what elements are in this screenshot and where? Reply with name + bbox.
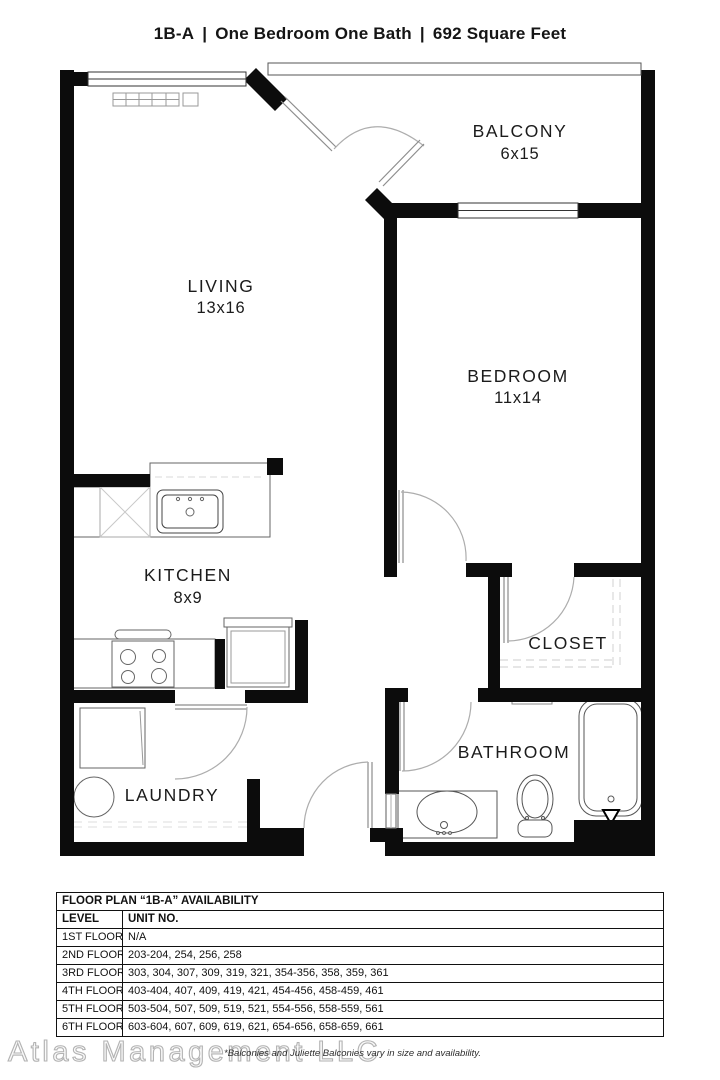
bedroom-door: [399, 490, 466, 563]
bedroom-label: BEDROOM: [467, 366, 569, 386]
fridge-icon: [224, 618, 292, 627]
table-row: 4TH FLOOR 403-404, 407, 409, 419, 421, 4…: [57, 983, 664, 1001]
bedroom-dims: 11x14: [494, 389, 542, 407]
laundry-door: [175, 705, 247, 779]
walls: [60, 70, 655, 856]
kitchen-dims: 8x9: [173, 589, 202, 607]
units-cell: 403-404, 407, 409, 419, 421, 454-456, 45…: [123, 983, 664, 1001]
units-cell: 603-604, 607, 609, 619, 621, 654-656, 65…: [123, 1019, 664, 1037]
balcony-rail: [268, 63, 641, 75]
water-heater-icon: [74, 777, 114, 817]
balcony-disclaimer: *Balconies and Juliette Balconies vary i…: [224, 1048, 481, 1059]
units-cell: 203-204, 254, 256, 258: [123, 947, 664, 965]
entry-door: [304, 762, 372, 828]
table-row: 6TH FLOOR 603-604, 607, 609, 619, 621, 6…: [57, 1019, 664, 1037]
stove-handle: [115, 630, 171, 639]
level-cell: 3RD FLOOR: [57, 965, 123, 983]
level-cell: 5TH FLOOR: [57, 1001, 123, 1019]
closet-shelving: [500, 579, 620, 667]
table-header-row: LEVEL UNIT NO.: [57, 911, 664, 929]
table-title: FLOOR PLAN “1B-A” AVAILABILITY: [57, 893, 664, 911]
living-label: LIVING: [188, 276, 255, 296]
floor-plan-drawing: BALCONY 6x15 LIVING 13x16 BEDROOM 11x14 …: [0, 0, 720, 888]
closet-label: CLOSET: [528, 633, 608, 653]
level-cell: 4TH FLOOR: [57, 983, 123, 1001]
col-header-units: UNIT NO.: [123, 911, 664, 929]
balcony-label: BALCONY: [473, 121, 568, 141]
living-dims: 13x16: [197, 299, 246, 317]
bathroom-fixtures: [398, 696, 642, 838]
laundry-label: LAUNDRY: [125, 785, 220, 805]
level-cell: 1ST FLOOR: [57, 929, 123, 947]
balcony-door: [281, 97, 424, 186]
laundry-fixtures: [73, 708, 250, 827]
table-title-row: FLOOR PLAN “1B-A” AVAILABILITY: [57, 893, 664, 911]
kitchen-label: KITCHEN: [144, 565, 232, 585]
table-row: 1ST FLOOR N/A: [57, 929, 664, 947]
bathroom-label: BATHROOM: [458, 742, 571, 762]
table-row: 5TH FLOOR 503-504, 507, 509, 519, 521, 5…: [57, 1001, 664, 1019]
level-cell: 6TH FLOOR: [57, 1019, 123, 1037]
table-row: 3RD FLOOR 303, 304, 307, 309, 319, 321, …: [57, 965, 664, 983]
units-cell: 303, 304, 307, 309, 319, 321, 354-356, 3…: [123, 965, 664, 983]
units-cell: N/A: [123, 929, 664, 947]
washer-icon: [80, 708, 145, 768]
living-heater-icon: [113, 93, 198, 106]
level-cell: 2ND FLOOR: [57, 947, 123, 965]
balcony-dims: 6x15: [501, 145, 540, 163]
table-row: 2ND FLOOR 203-204, 254, 256, 258: [57, 947, 664, 965]
availability-table: FLOOR PLAN “1B-A” AVAILABILITY LEVEL UNI…: [56, 892, 664, 1037]
units-cell: 503-504, 507, 509, 519, 521, 554-556, 55…: [123, 1001, 664, 1019]
col-header-level: LEVEL: [57, 911, 123, 929]
floor-plan-page: 1B-A|One Bedroom One Bath|692 Square Fee…: [0, 0, 720, 1080]
